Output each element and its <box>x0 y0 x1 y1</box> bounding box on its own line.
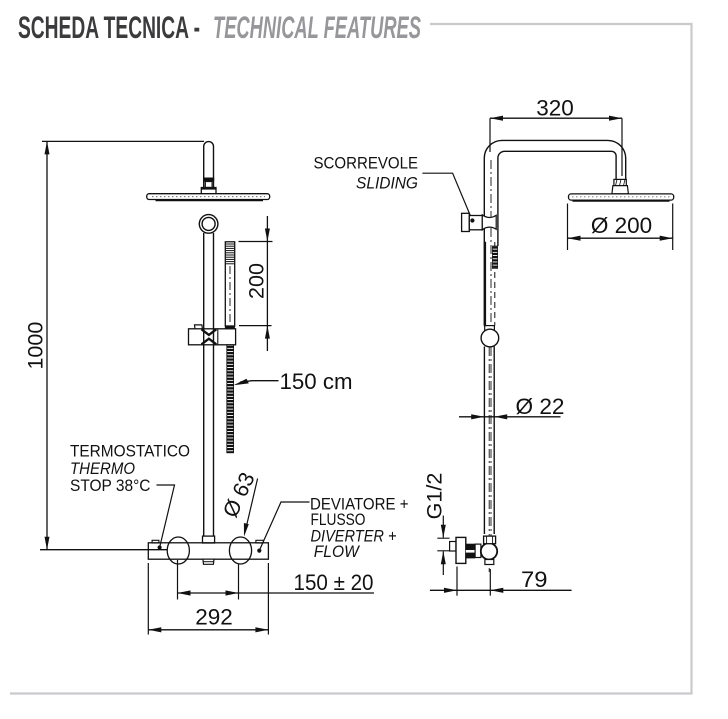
svg-text:200: 200 <box>245 263 269 299</box>
svg-text:FLOW: FLOW <box>314 543 360 561</box>
svg-text:TECHNICAL FEATURES: TECHNICAL FEATURES <box>213 10 421 45</box>
svg-text:FLUSSO: FLUSSO <box>311 511 366 529</box>
svg-text:TERMOSTATICO: TERMOSTATICO <box>70 443 190 461</box>
svg-text:79: 79 <box>521 567 548 592</box>
svg-text:G1/2: G1/2 <box>423 473 447 520</box>
svg-text:Ø 200: Ø 200 <box>591 213 652 238</box>
svg-text:Ø 22: Ø 22 <box>516 394 565 419</box>
svg-text:SCHEDA TECNICA -: SCHEDA TECNICA - <box>18 10 200 45</box>
svg-text:THERMO: THERMO <box>70 460 135 478</box>
svg-text:SCORREVOLE: SCORREVOLE <box>314 155 419 173</box>
svg-text:STOP 38°C: STOP 38°C <box>70 477 151 495</box>
svg-text:150 ± 20: 150 ± 20 <box>294 570 374 595</box>
svg-text:150 cm: 150 cm <box>280 369 353 394</box>
svg-text:SLIDING: SLIDING <box>356 174 418 192</box>
svg-text:1000: 1000 <box>24 322 48 370</box>
svg-text:320: 320 <box>536 95 574 120</box>
svg-text:292: 292 <box>195 604 233 629</box>
